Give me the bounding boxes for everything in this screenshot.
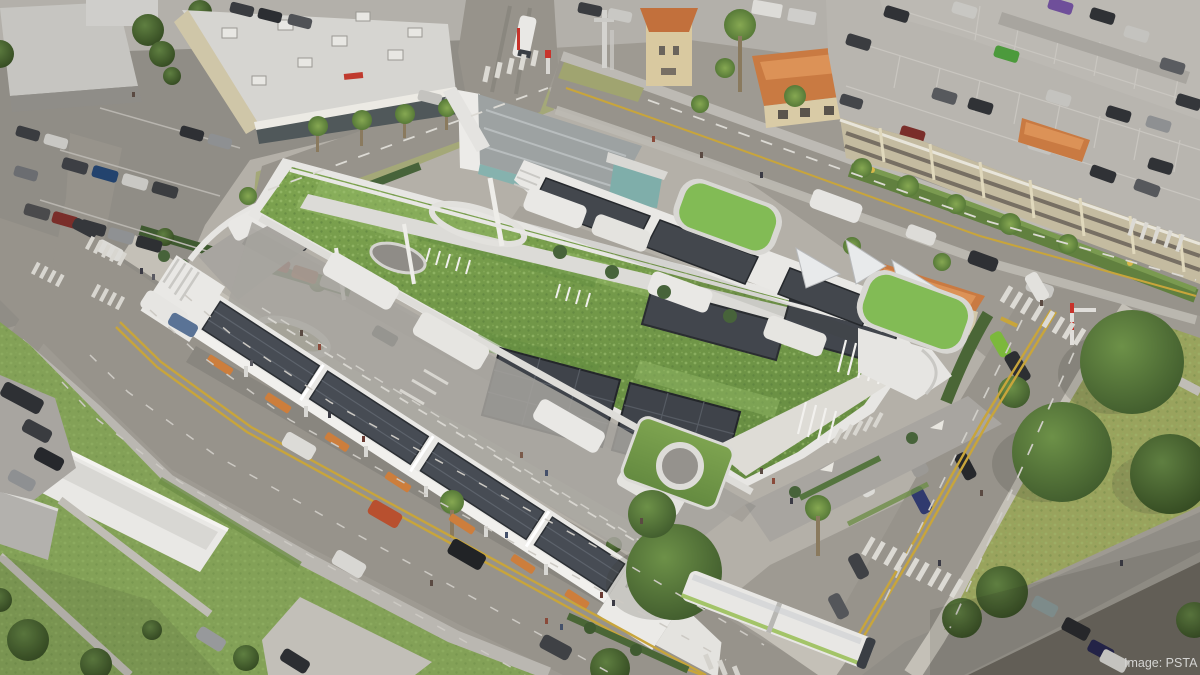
svg-text:Image: PSTA: Image: PSTA <box>1124 656 1198 670</box>
